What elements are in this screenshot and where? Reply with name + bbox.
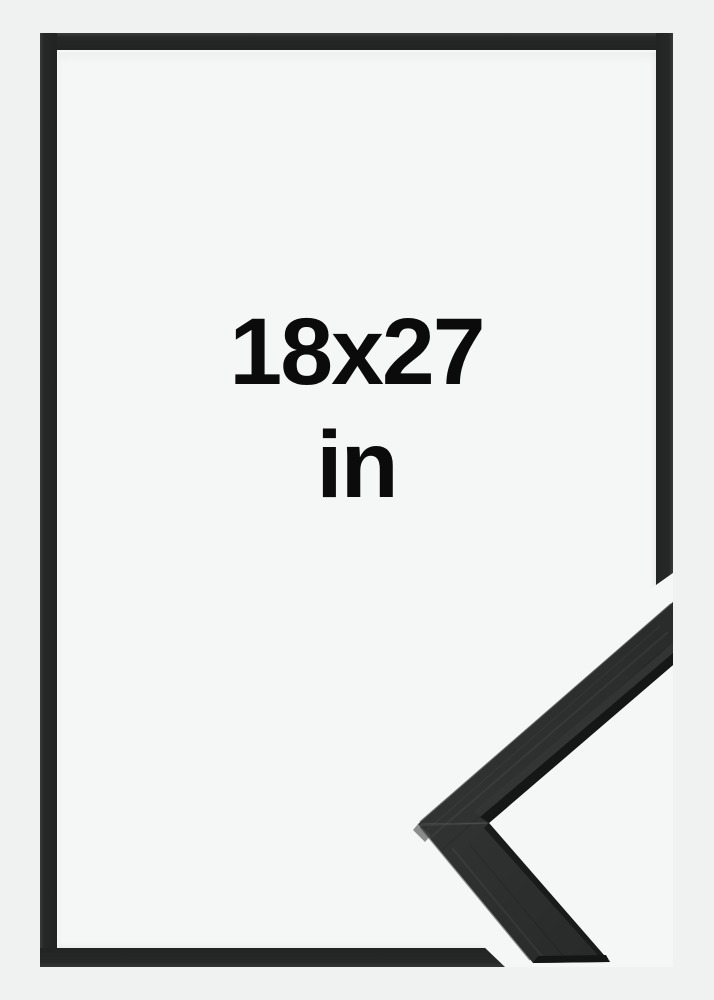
molding-top-arris (420, 604, 671, 822)
molding-inner-lip (474, 643, 673, 817)
molding-bottom-cut (533, 955, 610, 963)
frame-molding-corner-photo (0, 0, 714, 1000)
frame-product-image: 18x27in (0, 0, 714, 1000)
molding-inner-lip-shadow (480, 653, 673, 823)
molding-lower-leg (418, 823, 610, 963)
